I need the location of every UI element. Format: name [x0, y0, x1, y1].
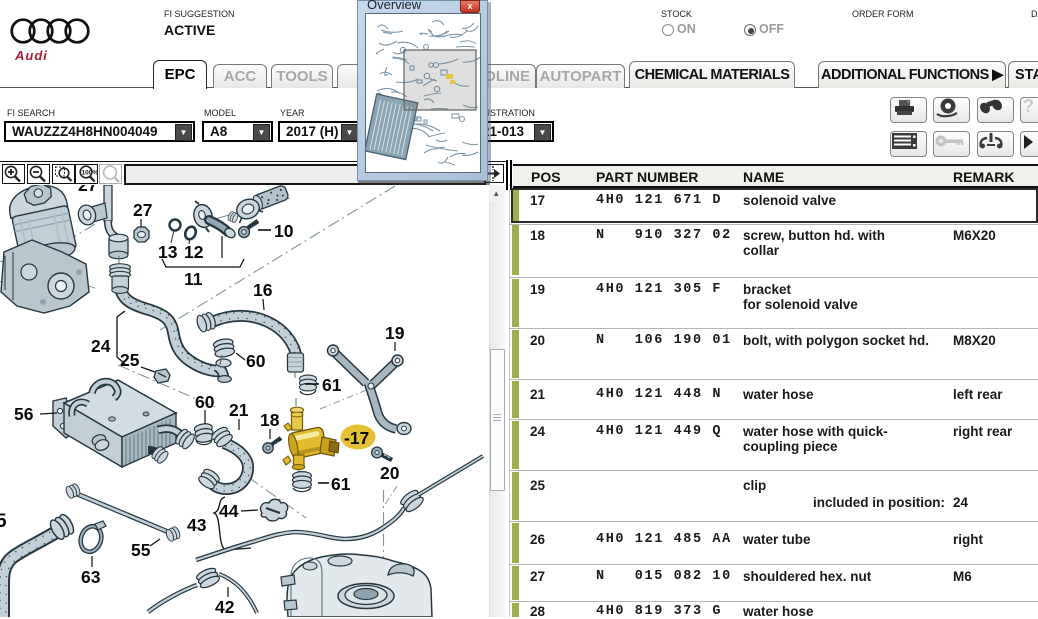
svg-text:61: 61: [322, 375, 342, 395]
svg-text:12: 12: [184, 242, 204, 262]
svg-text:20: 20: [380, 463, 400, 483]
svg-text:63: 63: [81, 567, 101, 587]
svg-text:13: 13: [158, 242, 178, 262]
svg-text:5: 5: [0, 511, 7, 532]
svg-text:55: 55: [131, 540, 151, 560]
svg-text:60: 60: [246, 351, 266, 371]
svg-text:27: 27: [133, 200, 152, 220]
svg-text:42: 42: [215, 597, 235, 617]
svg-text:16: 16: [253, 280, 273, 300]
svg-text:21: 21: [229, 400, 249, 420]
svg-text:56: 56: [14, 404, 34, 424]
svg-text:43: 43: [187, 515, 207, 535]
svg-text:10: 10: [274, 221, 294, 241]
svg-text:?: ?: [1023, 96, 1034, 116]
svg-text:19: 19: [385, 323, 405, 343]
svg-text:61: 61: [331, 474, 351, 494]
svg-text:-17: -17: [344, 428, 369, 448]
svg-text:24: 24: [91, 336, 111, 356]
svg-text:60: 60: [195, 392, 215, 412]
svg-text:25: 25: [120, 350, 140, 370]
svg-text:100%: 100%: [82, 170, 99, 177]
svg-text:44: 44: [219, 501, 239, 521]
svg-text:27: 27: [78, 185, 97, 195]
svg-text:11: 11: [184, 269, 203, 289]
svg-text:18: 18: [260, 410, 280, 430]
